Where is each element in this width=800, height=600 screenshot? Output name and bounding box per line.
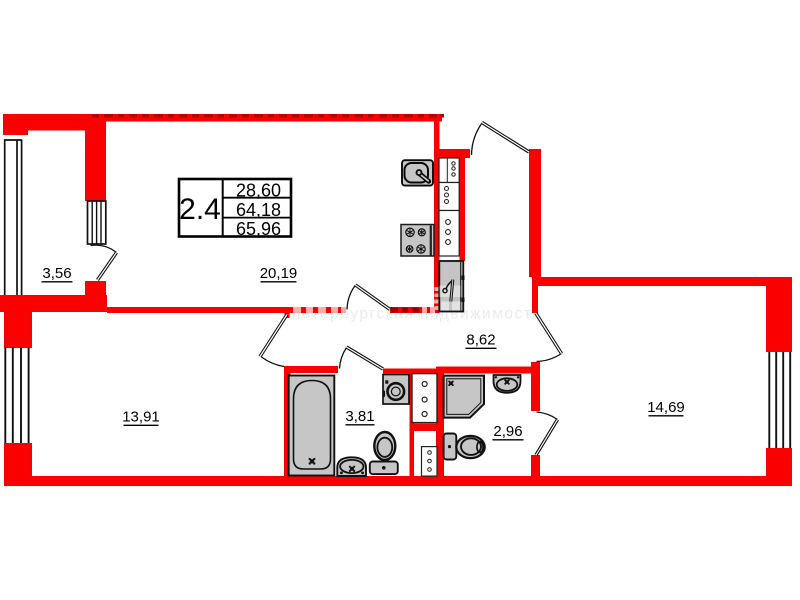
svg-text:3,56: 3,56 [42,265,71,282]
svg-text:64,18: 64,18 [236,200,281,220]
svg-text:2.4: 2.4 [179,193,221,226]
svg-text:14,69: 14,69 [647,399,685,416]
svg-text:20,19: 20,19 [260,265,298,282]
svg-text:3,81: 3,81 [345,408,374,425]
svg-text:13,91: 13,91 [122,409,160,426]
svg-text:2,96: 2,96 [493,423,522,440]
svg-text:28,60: 28,60 [236,181,281,201]
svg-text:8,62: 8,62 [466,332,495,349]
svg-text:65,96: 65,96 [236,219,281,239]
